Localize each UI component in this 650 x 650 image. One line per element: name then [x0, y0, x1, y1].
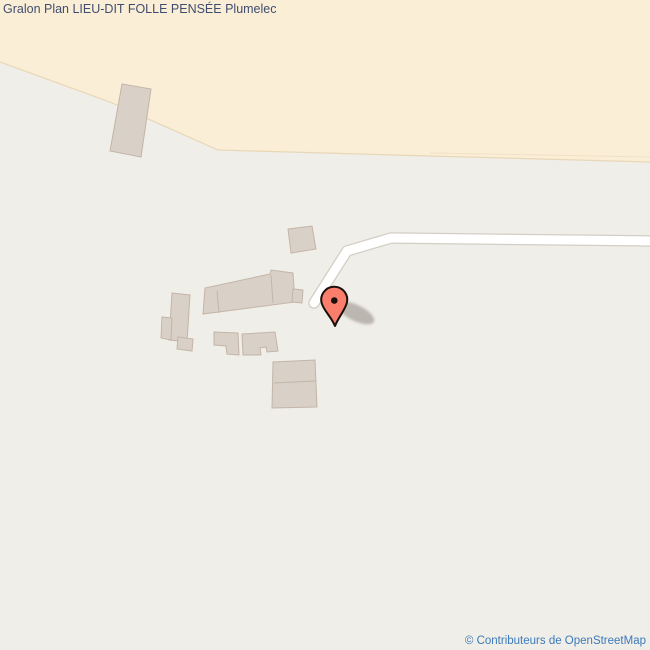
building-footprint	[177, 337, 193, 351]
road-surface	[314, 238, 650, 303]
building-footprint	[161, 317, 172, 340]
building-footprint	[214, 332, 239, 355]
osm-attribution-link[interactable]: © Contributeurs de OpenStreetMap	[465, 634, 646, 648]
marker-center-dot	[331, 297, 338, 304]
building-footprint	[288, 226, 316, 253]
building-footprint	[272, 360, 317, 408]
map-canvas	[0, 0, 650, 650]
farmland-area	[0, 0, 650, 162]
building-footprint	[169, 293, 190, 342]
location-pin-icon[interactable]	[321, 287, 377, 329]
marker-body	[321, 287, 347, 326]
page-title: Gralon Plan LIEU-DIT FOLLE PENSÉE Plumel…	[3, 1, 277, 17]
building-footprint	[292, 289, 303, 303]
map-viewport[interactable]: Gralon Plan LIEU-DIT FOLLE PENSÉE Plumel…	[0, 0, 650, 650]
building-footprint	[242, 332, 278, 355]
